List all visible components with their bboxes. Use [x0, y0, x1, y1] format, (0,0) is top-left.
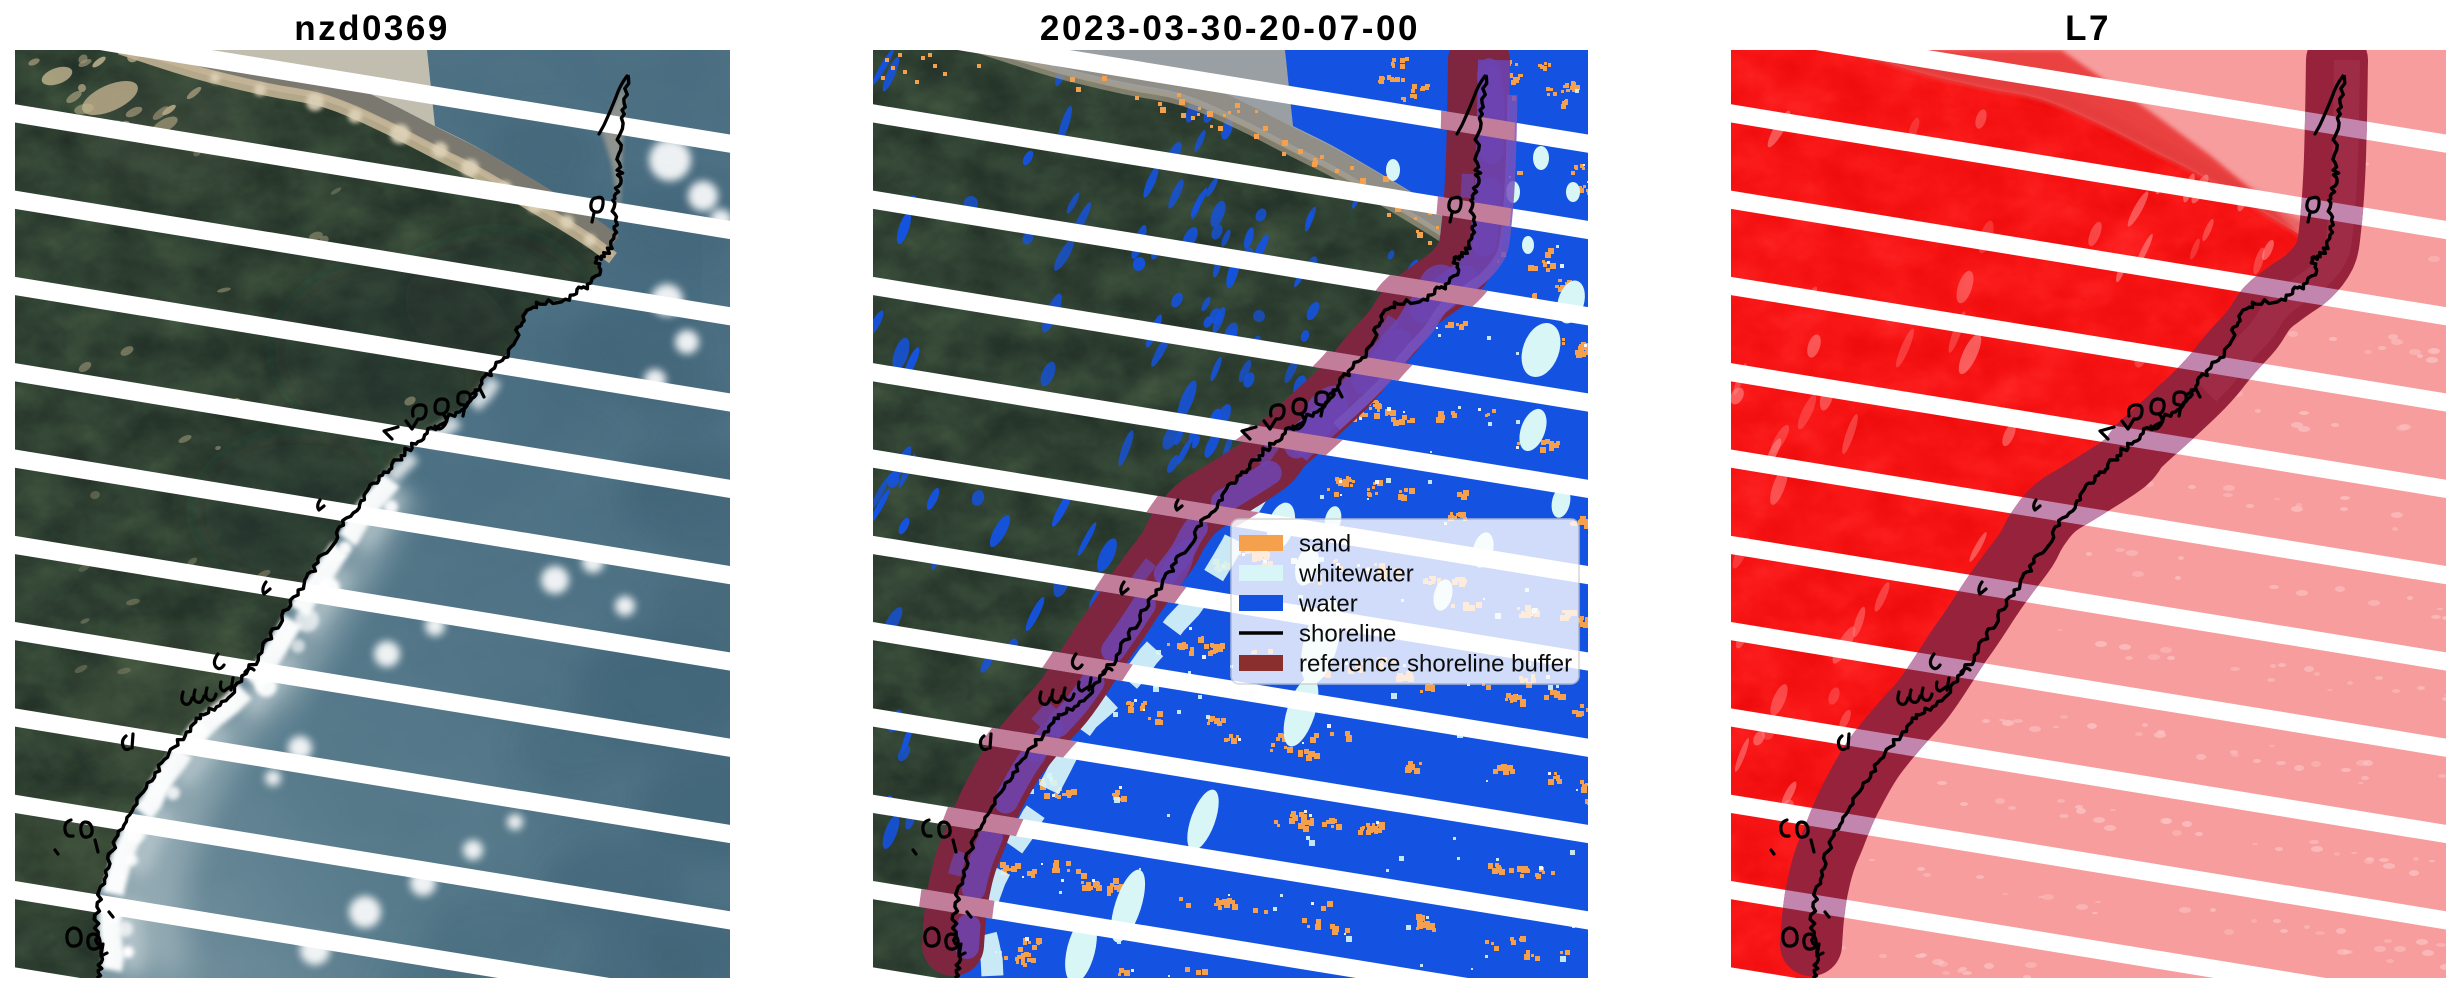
- svg-text:L7: L7: [2065, 9, 2111, 48]
- svg-text:reference shoreline buffer: reference shoreline buffer: [1299, 651, 1572, 678]
- svg-text:2023-03-30-20-07-00: 2023-03-30-20-07-00: [1040, 9, 1420, 48]
- svg-text:sand: sand: [1299, 531, 1351, 558]
- svg-text:water: water: [1298, 591, 1358, 618]
- svg-text:nzd0369: nzd0369: [294, 9, 450, 48]
- svg-text:shoreline: shoreline: [1299, 621, 1396, 648]
- svg-text:whitewater: whitewater: [1298, 561, 1414, 588]
